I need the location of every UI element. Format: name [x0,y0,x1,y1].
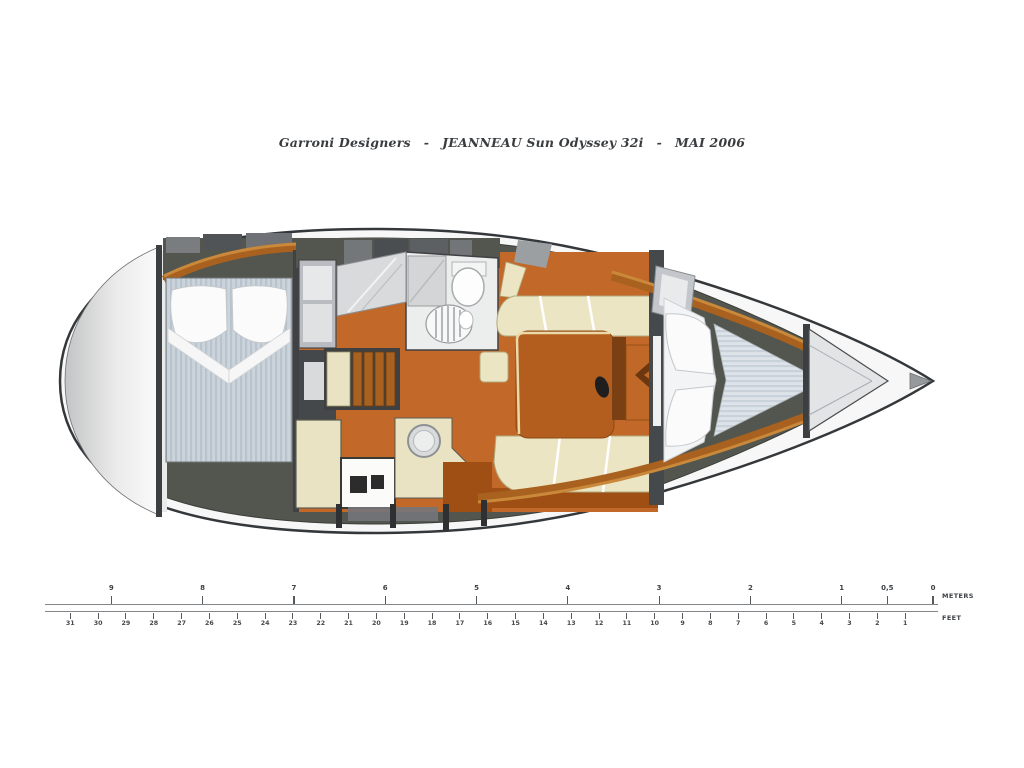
galley-counter [296,420,341,508]
cockpit-coaming [163,233,298,280]
burner [371,475,384,489]
stern-platform [65,245,167,517]
page: { "title": { "designer": "Garroni Design… [0,0,1024,768]
stove [341,458,395,508]
toilet [452,268,484,306]
companionway-steps [324,348,400,410]
pillow [171,286,227,343]
burner [350,476,367,493]
pillow [232,286,287,343]
head-compartment [406,252,498,350]
settee-top [497,296,652,336]
nav-seat [480,352,508,382]
aft-bulkhead [156,245,162,517]
boat-floorplan [0,0,1024,768]
forepeak [803,324,931,438]
